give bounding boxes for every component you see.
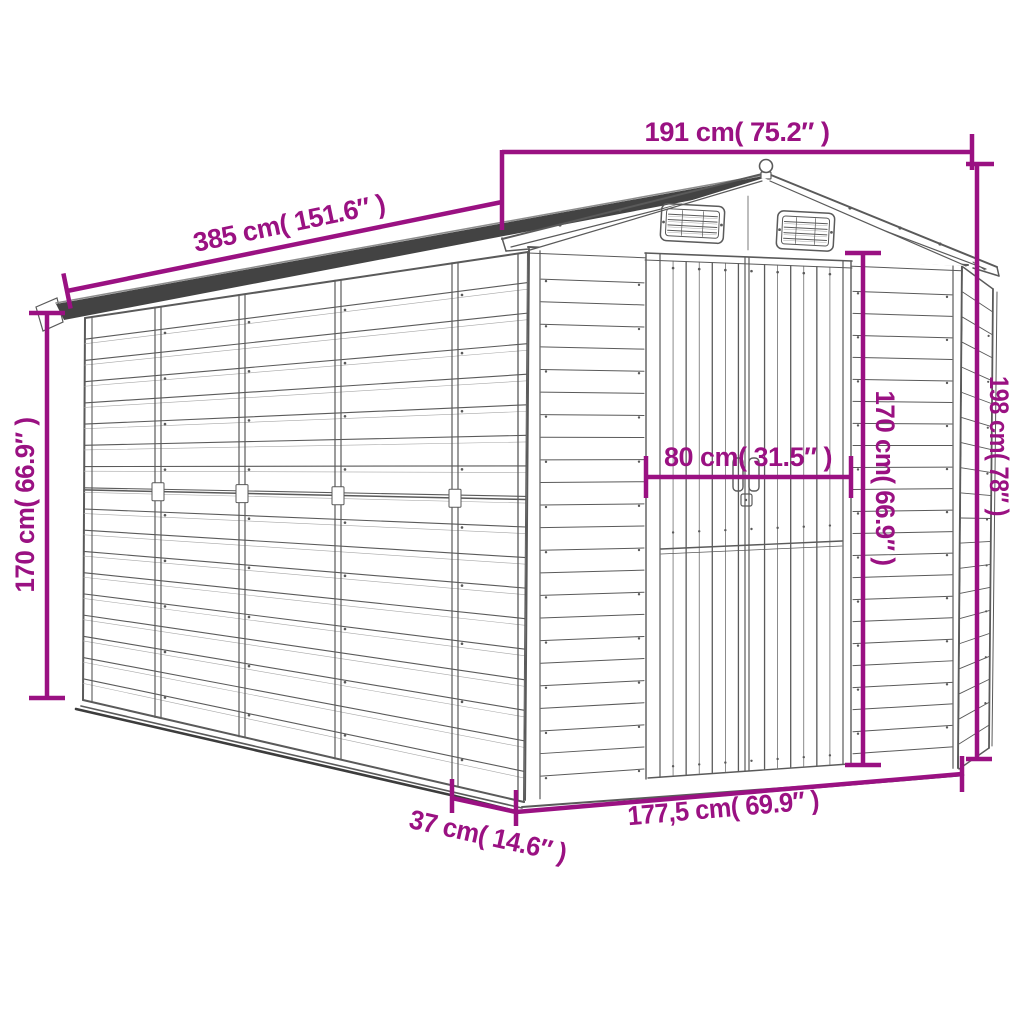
diagram-canvas: 191 cm( 75.2″ ) 385 cm( 151.6″ ) 170 cm(…	[0, 0, 1024, 1024]
shed-dimension-diagram: 191 cm( 75.2″ ) 385 cm( 151.6″ ) 170 cm(…	[0, 0, 1024, 1024]
dim-wall-height-label: 170 cm( 66.9″ )	[10, 418, 40, 593]
dim-wall-height: 170 cm( 66.9″ )	[10, 313, 65, 698]
shed-drawing	[36, 160, 999, 813]
side-wall	[83, 252, 528, 802]
dim-door-width-label: 80 cm( 31.5″ )	[664, 442, 832, 472]
dim-roof-width-label: 191 cm( 75.2″ )	[645, 117, 830, 147]
dim-overall-height-label: 198 cm( 78″ )	[984, 376, 1014, 516]
dim-base-depth-label: 37 cm( 14.6″ )	[407, 804, 570, 868]
doors	[645, 253, 852, 779]
dim-door-height-label: 170 cm( 66.9″ )	[870, 391, 900, 566]
